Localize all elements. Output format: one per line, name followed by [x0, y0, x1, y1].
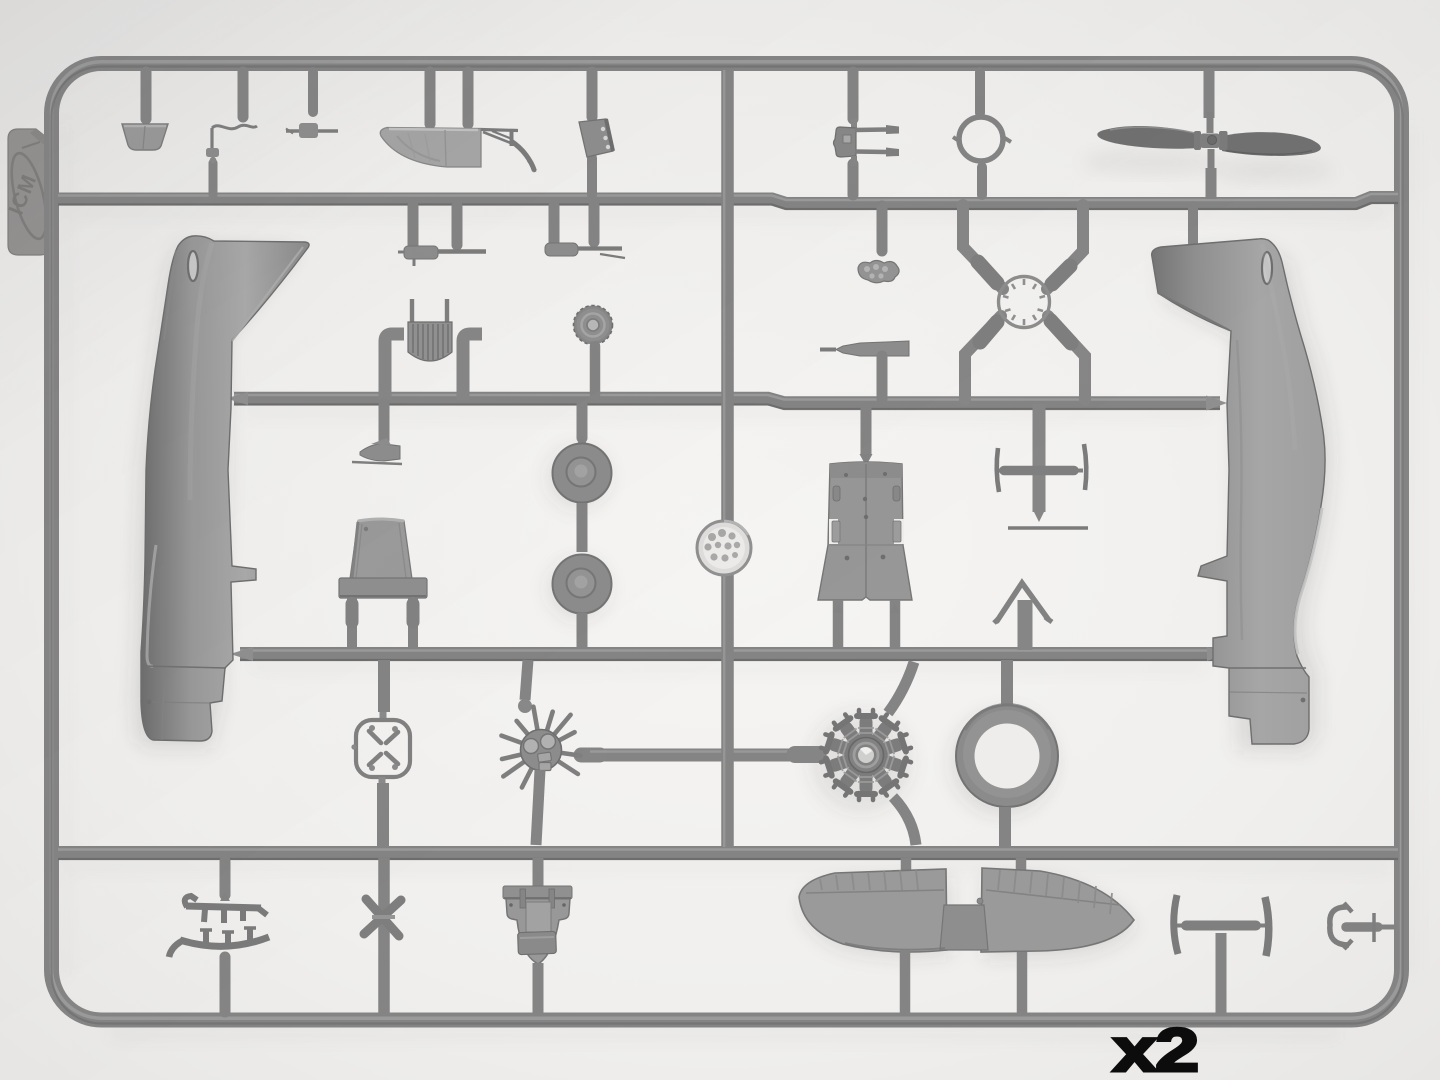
svg-text:x2: x2 [1113, 1016, 1198, 1080]
